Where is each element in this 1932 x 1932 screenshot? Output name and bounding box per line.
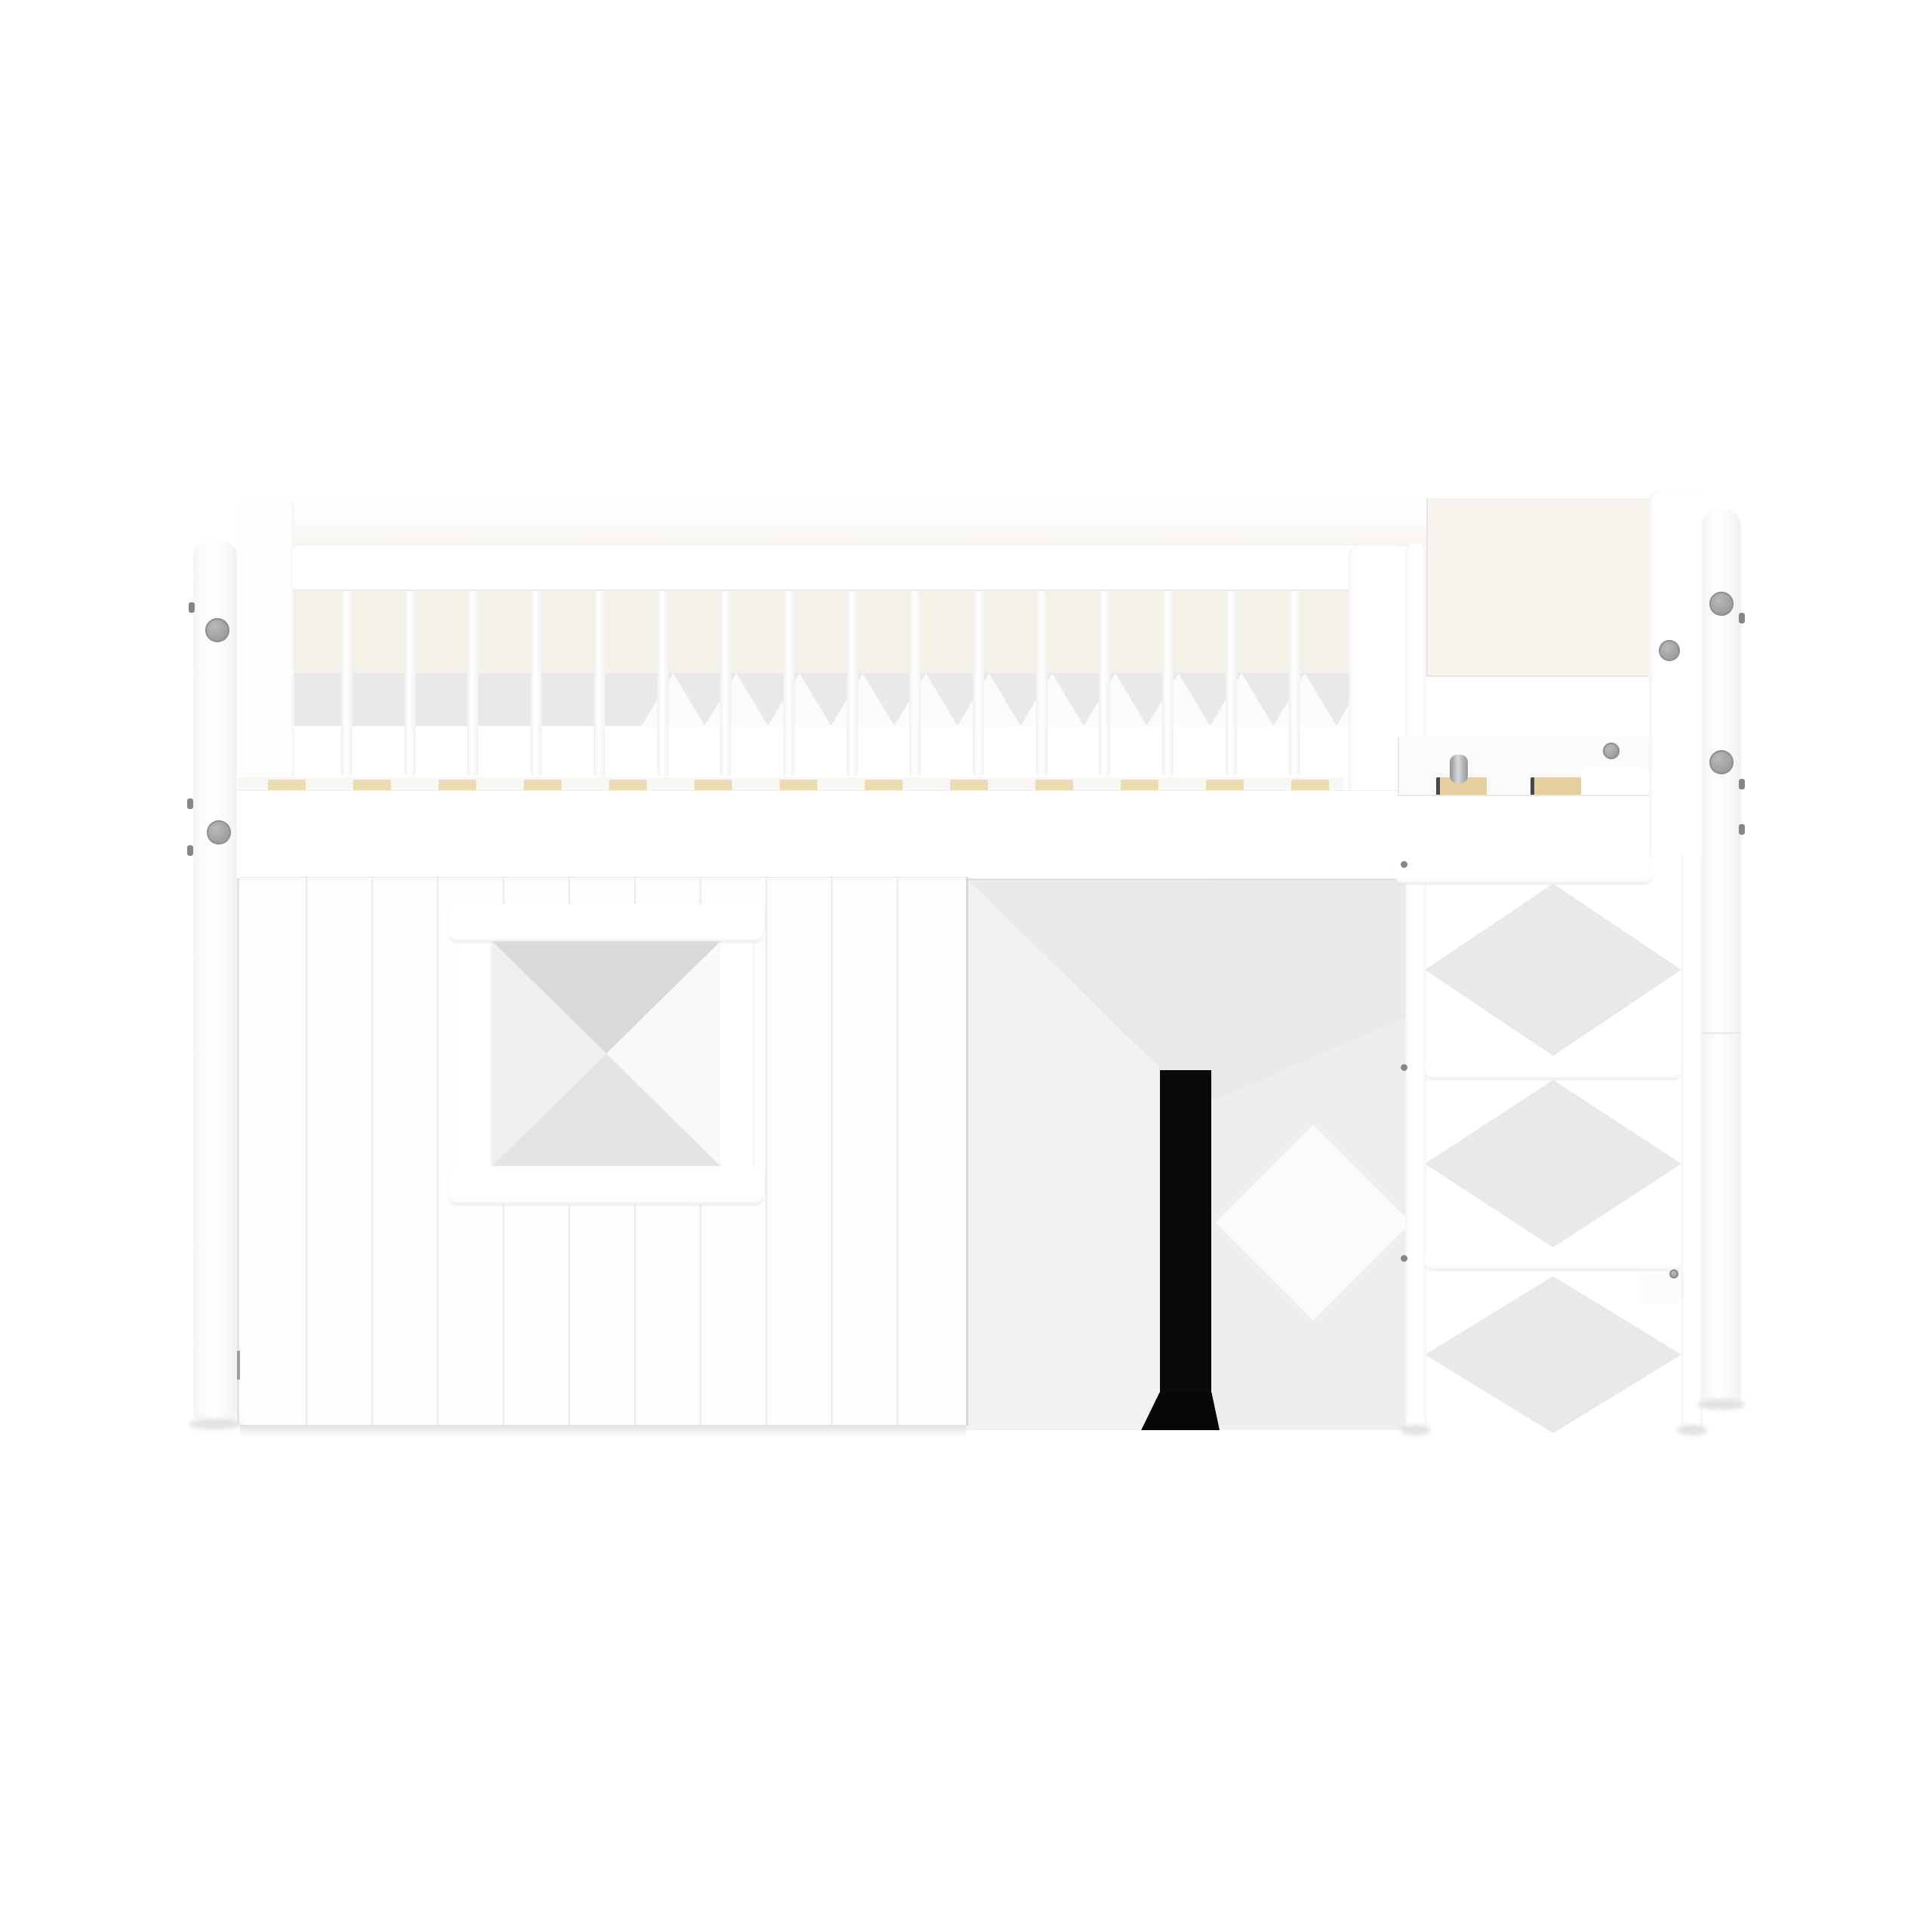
bolt-tip (1739, 779, 1745, 789)
screw-cap (1603, 743, 1620, 759)
screw-cap (1709, 592, 1734, 616)
screw-cap (1709, 750, 1734, 774)
ground-shadow (1697, 1399, 1746, 1410)
ladder-bolt-head (1401, 1064, 1407, 1071)
ladder-bolt-head (1401, 1255, 1407, 1262)
ladder-bolt-head (1401, 861, 1407, 868)
bolt-tip (1739, 613, 1745, 623)
product-photo-white-loft-bed (0, 0, 1932, 1932)
screw-cap (1659, 640, 1680, 661)
ground-shadow (1401, 1425, 1431, 1435)
bolt-tip (1739, 824, 1745, 835)
ground-shadow (189, 1419, 241, 1429)
bolt-tip (187, 845, 193, 856)
ground-shadow (1677, 1425, 1707, 1435)
screw-cap (207, 820, 231, 844)
bolt-tip (189, 602, 195, 613)
screw-cap (1669, 1269, 1678, 1278)
screw-cap (205, 618, 229, 642)
hardware (0, 0, 1932, 1932)
bolt-tip (187, 798, 193, 809)
